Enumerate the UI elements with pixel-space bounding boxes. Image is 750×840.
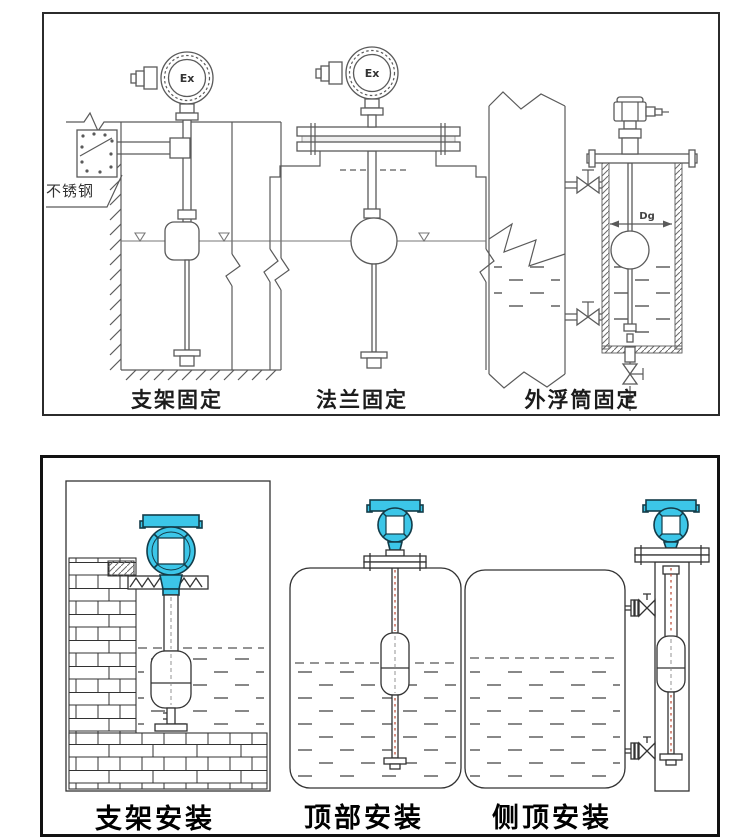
brick-floor <box>69 733 267 789</box>
caption-bracket-fixing: 支架固定 <box>107 384 247 414</box>
stainless-steel-label: 不锈钢 <box>46 180 94 201</box>
caption-top-installation: 顶部安装 <box>284 796 444 835</box>
upper-connection-valve <box>625 594 655 616</box>
rod-stopper <box>174 350 200 366</box>
bracket-arm <box>117 142 172 154</box>
caption-external-chamber-fixing: 外浮筒固定 <box>497 384 667 414</box>
caption-side-top-installation: 侧顶安装 <box>472 796 632 835</box>
mounting-plate <box>77 130 117 177</box>
installation-methods-panel <box>40 455 720 837</box>
bracket-corner <box>108 561 134 576</box>
lower-connection-valve <box>625 737 655 759</box>
tank-liquid <box>470 662 620 784</box>
float-ball <box>611 231 649 269</box>
brick-wall <box>69 558 136 738</box>
transmitter-cyan-right <box>635 500 709 565</box>
caption-bracket-installation: 支架安装 <box>75 797 235 836</box>
transmitter-cyan-middle <box>364 500 426 571</box>
external-chamber-fixing-diagram: Dg <box>489 92 697 411</box>
lower-isolation-valve <box>565 302 602 325</box>
float-body <box>657 636 685 692</box>
transmitter-ex-middle: Ex <box>316 47 398 127</box>
ex-marking-left: Ex <box>180 72 195 85</box>
guide-rod <box>185 260 189 350</box>
rod-stopper <box>361 352 387 368</box>
caption-flange-fixing: 法兰固定 <box>292 384 432 414</box>
tank-liquid <box>494 266 560 318</box>
floor-hatching <box>126 370 276 380</box>
guide-rod <box>372 264 376 352</box>
upper-isolation-valve <box>565 170 602 193</box>
top-installation-diagram <box>290 500 461 788</box>
dg-label: Dg <box>639 211 654 222</box>
dg-dimension: Dg <box>610 211 672 228</box>
chamber-liquid <box>610 266 674 338</box>
flange-fixing-diagram: Ex <box>264 47 494 370</box>
wall-hatching <box>110 164 121 370</box>
fixing-methods-panel: Ex <box>42 12 720 416</box>
float-level-transmitter-installation-figure: Ex <box>0 0 750 840</box>
float-body <box>151 651 191 708</box>
transmitter-ex-left: Ex <box>131 52 213 222</box>
fixing-methods-drawing: Ex <box>44 14 718 414</box>
tank-liquid <box>295 667 456 783</box>
transmitter-head-junction-box <box>614 97 669 154</box>
bracket-fixing-diagram: Ex <box>46 52 289 380</box>
float-body <box>165 222 199 260</box>
float-body <box>381 633 409 695</box>
bracket-installation-diagram <box>66 481 270 791</box>
float-ball <box>351 218 397 264</box>
side-top-installation-diagram <box>465 500 709 791</box>
ex-marking-middle: Ex <box>365 67 380 80</box>
mounting-flange <box>297 123 460 155</box>
installation-methods-drawing <box>43 458 717 834</box>
